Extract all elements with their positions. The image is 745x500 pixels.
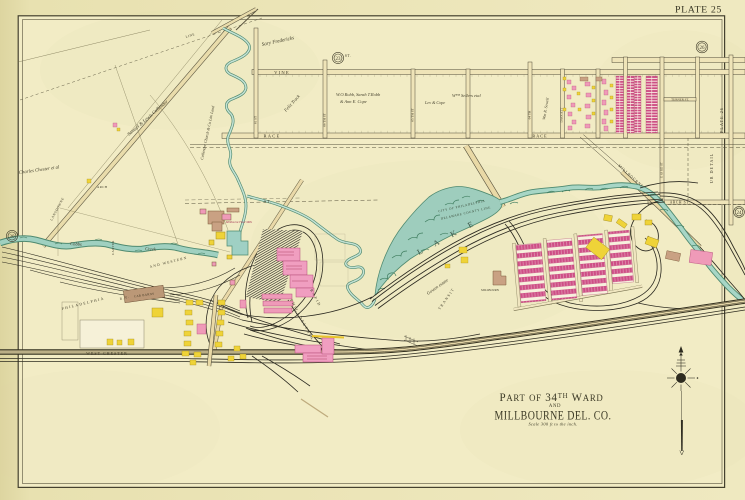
svg-text:W™ Sellers etal: W™ Sellers etal bbox=[452, 93, 481, 98]
svg-text:Creek: Creek bbox=[145, 246, 157, 252]
svg-text:24: 24 bbox=[737, 211, 743, 216]
svg-text:65 TH ST: 65 TH ST bbox=[411, 107, 415, 121]
svg-text:PLATE 25: PLATE 25 bbox=[675, 6, 722, 16]
svg-text:MILLBOURNE DEL. CO.: MILLBOURNE DEL. CO. bbox=[495, 409, 612, 423]
svg-text:VINE: VINE bbox=[274, 70, 290, 75]
svg-text:ST.: ST. bbox=[264, 199, 272, 204]
svg-text:64 TH: 64 TH bbox=[528, 110, 532, 119]
svg-text:UR DETAIL: UR DETAIL bbox=[709, 153, 714, 184]
svg-text:66 TH ST: 66 TH ST bbox=[323, 112, 327, 126]
svg-text:30: 30 bbox=[10, 235, 16, 240]
svg-text:& Ann E. Cope: & Ann E. Cope bbox=[340, 99, 367, 104]
svg-text:RACE: RACE bbox=[532, 134, 547, 139]
svg-text:CARTER: CARTER bbox=[111, 240, 115, 255]
svg-text:PLATE 26: PLATE 26 bbox=[719, 107, 724, 133]
svg-text:ST.: ST. bbox=[345, 54, 351, 58]
svg-text:Lev & Cope: Lev & Cope bbox=[424, 100, 445, 105]
svg-text:26: 26 bbox=[700, 46, 706, 51]
svg-text:Scale 300 ft to the inch.: Scale 300 ft to the inch. bbox=[529, 422, 578, 427]
svg-text:MILLBOURN: MILLBOURN bbox=[481, 288, 500, 292]
svg-text:61 ST: 61 ST bbox=[254, 115, 258, 124]
svg-text:TURNER ST.: TURNER ST. bbox=[671, 97, 689, 101]
svg-text:DAGGETT: DAGGETT bbox=[560, 107, 564, 122]
svg-text:23: 23 bbox=[336, 57, 342, 62]
svg-text:Millbourne Flour Mills: Millbourne Flour Mills bbox=[225, 221, 252, 224]
svg-text:ARCH: ARCH bbox=[97, 185, 108, 189]
svg-text:PART OF 34TH WARD: PART OF 34TH WARD bbox=[500, 390, 604, 404]
svg-text:WEST CHESTER: WEST CHESTER bbox=[86, 351, 128, 356]
svg-text:E 63 RD ST: E 63 RD ST bbox=[660, 162, 664, 178]
svg-text:ARCH ST.: ARCH ST. bbox=[670, 200, 691, 204]
svg-text:RACE: RACE bbox=[263, 134, 280, 139]
svg-text:Cobbs: Cobbs bbox=[70, 241, 82, 247]
